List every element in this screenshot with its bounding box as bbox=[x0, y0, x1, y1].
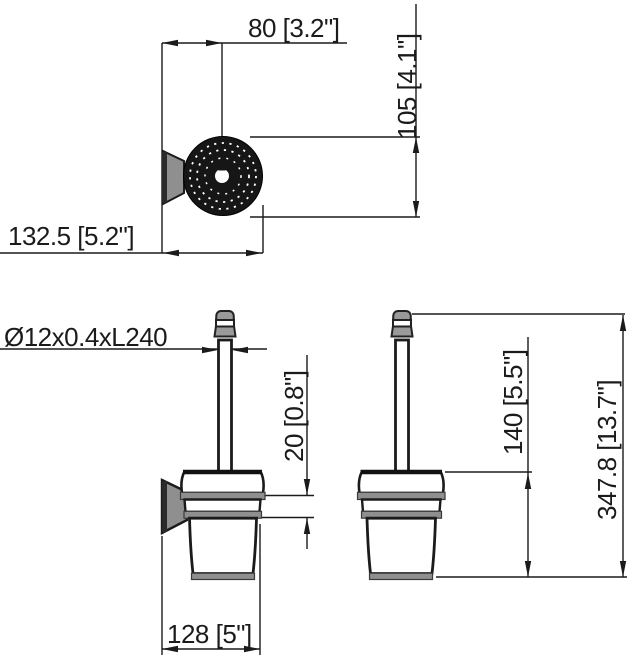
dim-label-cup-height: 140 [5.5"] bbox=[498, 350, 529, 455]
dim-arrow bbox=[525, 561, 531, 577]
holder-collar bbox=[362, 500, 441, 512]
dim-label-brush-spec: Ø12x0.4xL240 bbox=[4, 322, 167, 353]
dim-label-collar-height: 20 [0.8"] bbox=[279, 371, 310, 462]
holder-lid bbox=[181, 472, 263, 494]
top-view bbox=[163, 137, 263, 216]
holder-collar bbox=[185, 500, 261, 512]
dim-arrow bbox=[413, 137, 419, 153]
holder-cup bbox=[190, 518, 257, 573]
holder-cup-base bbox=[192, 573, 255, 579]
flange-hole-notch bbox=[219, 166, 226, 171]
brush-knob-base bbox=[215, 326, 236, 337]
holder-lid bbox=[359, 472, 444, 494]
brush-rod bbox=[219, 340, 232, 472]
dim-arrow bbox=[162, 40, 178, 46]
brush-knob-cap bbox=[216, 311, 234, 320]
dim-label-total-height: 347.8 [13.7"] bbox=[592, 380, 623, 520]
dim-arrow bbox=[206, 40, 222, 46]
brush-knob-base bbox=[392, 326, 413, 337]
side-view bbox=[358, 311, 446, 580]
dim-arrow bbox=[163, 250, 179, 256]
brush-knob-cap bbox=[393, 311, 411, 320]
technical-drawing: 80 [3.2"] 105 [4.1"] 132.5 [5.2"] Ø12x0.… bbox=[0, 0, 629, 657]
holder-cup bbox=[367, 518, 436, 573]
holder-cup-base bbox=[370, 573, 433, 579]
dim-arrow bbox=[304, 479, 310, 495]
dim-arrow bbox=[304, 518, 310, 534]
dim-arrow bbox=[202, 347, 218, 353]
flange-center-hole bbox=[215, 169, 229, 183]
dim-arrow bbox=[232, 347, 248, 353]
dim-arrow bbox=[246, 250, 262, 256]
front-view bbox=[162, 311, 265, 580]
dim-label-base-width: 128 [5"] bbox=[167, 619, 252, 650]
dim-arrow bbox=[525, 473, 531, 489]
brush-rod bbox=[396, 340, 409, 472]
dim-arrow bbox=[620, 561, 626, 577]
dim-label-top-height: 105 [4.1"] bbox=[392, 34, 423, 139]
dim-arrow bbox=[620, 315, 626, 331]
dim-label-top-width: 80 [3.2"] bbox=[248, 13, 339, 44]
dim-arrow bbox=[413, 201, 419, 217]
dim-label-wall-depth: 132.5 [5.2"] bbox=[8, 221, 134, 252]
